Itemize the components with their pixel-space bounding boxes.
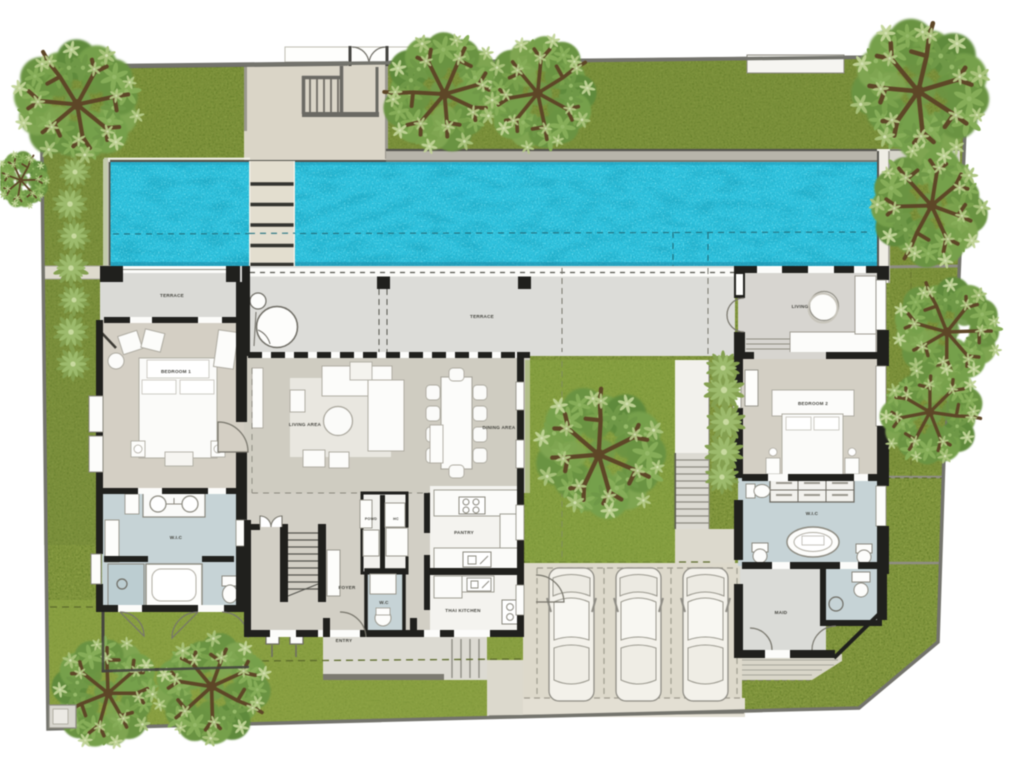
svg-text:HC: HC bbox=[393, 517, 399, 521]
svg-text:THAI KITCHEN: THAI KITCHEN bbox=[445, 608, 481, 613]
svg-text:BEDROOM 1: BEDROOM 1 bbox=[161, 369, 191, 374]
svg-text:LIVING: LIVING bbox=[792, 304, 809, 309]
svg-text:POWD: POWD bbox=[365, 517, 377, 521]
svg-text:TERRACE: TERRACE bbox=[470, 314, 494, 319]
svg-text:LIVING AREA: LIVING AREA bbox=[289, 422, 322, 427]
svg-text:FOYER: FOYER bbox=[338, 585, 356, 590]
svg-text:TERRACE: TERRACE bbox=[160, 293, 184, 298]
svg-text:W.C: W.C bbox=[379, 600, 389, 605]
svg-text:PANTRY: PANTRY bbox=[454, 530, 474, 535]
svg-text:BEDROOM 2: BEDROOM 2 bbox=[798, 401, 828, 406]
svg-text:DINING AREA: DINING AREA bbox=[483, 425, 516, 430]
svg-text:W.I.C: W.I.C bbox=[170, 535, 183, 540]
svg-text:MAID: MAID bbox=[775, 610, 788, 615]
svg-text:ENTRY: ENTRY bbox=[336, 638, 353, 643]
svg-text:W.I.C: W.I.C bbox=[806, 511, 819, 516]
